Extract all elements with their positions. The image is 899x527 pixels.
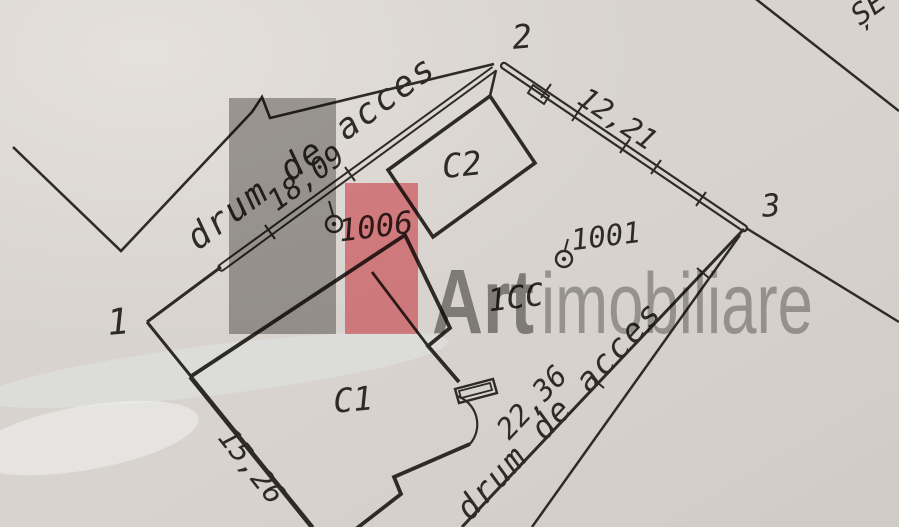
building-label-c1: C1 — [331, 378, 374, 420]
corner-label-1: 1 — [105, 301, 130, 344]
corner-label-3: 3 — [759, 187, 782, 225]
cadastral-plan-svg: drum de acces 18,09 12,21 drum de acces … — [0, 0, 899, 527]
watermark-logo-bold: Art — [432, 251, 534, 353]
building-label-c2: C2 — [440, 143, 484, 186]
watermark-red-block — [345, 183, 418, 334]
scanned-cadastral-plan: drum de acces 18,09 12,21 drum de acces … — [0, 0, 899, 527]
watermark-gray-block — [229, 98, 336, 334]
watermark-logo-light: imobiliare — [541, 256, 813, 352]
corner-label-2: 2 — [510, 16, 533, 57]
